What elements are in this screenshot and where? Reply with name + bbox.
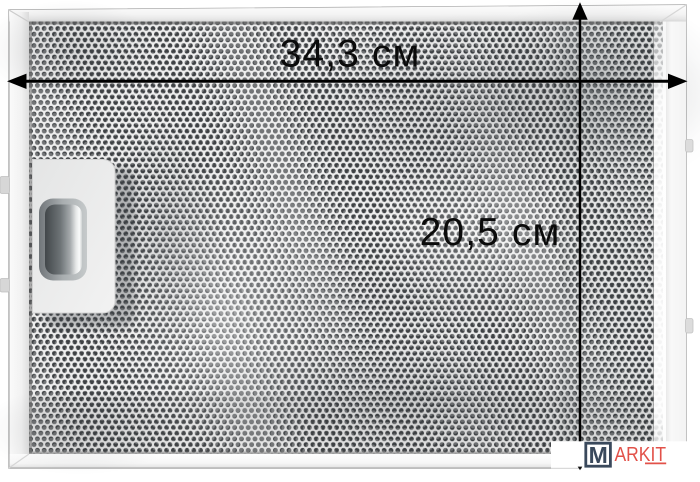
svg-text:20,5 см: 20,5 см [420, 211, 561, 254]
svg-text:34,3 см: 34,3 см [280, 33, 421, 76]
svg-text:M: M [589, 442, 608, 468]
